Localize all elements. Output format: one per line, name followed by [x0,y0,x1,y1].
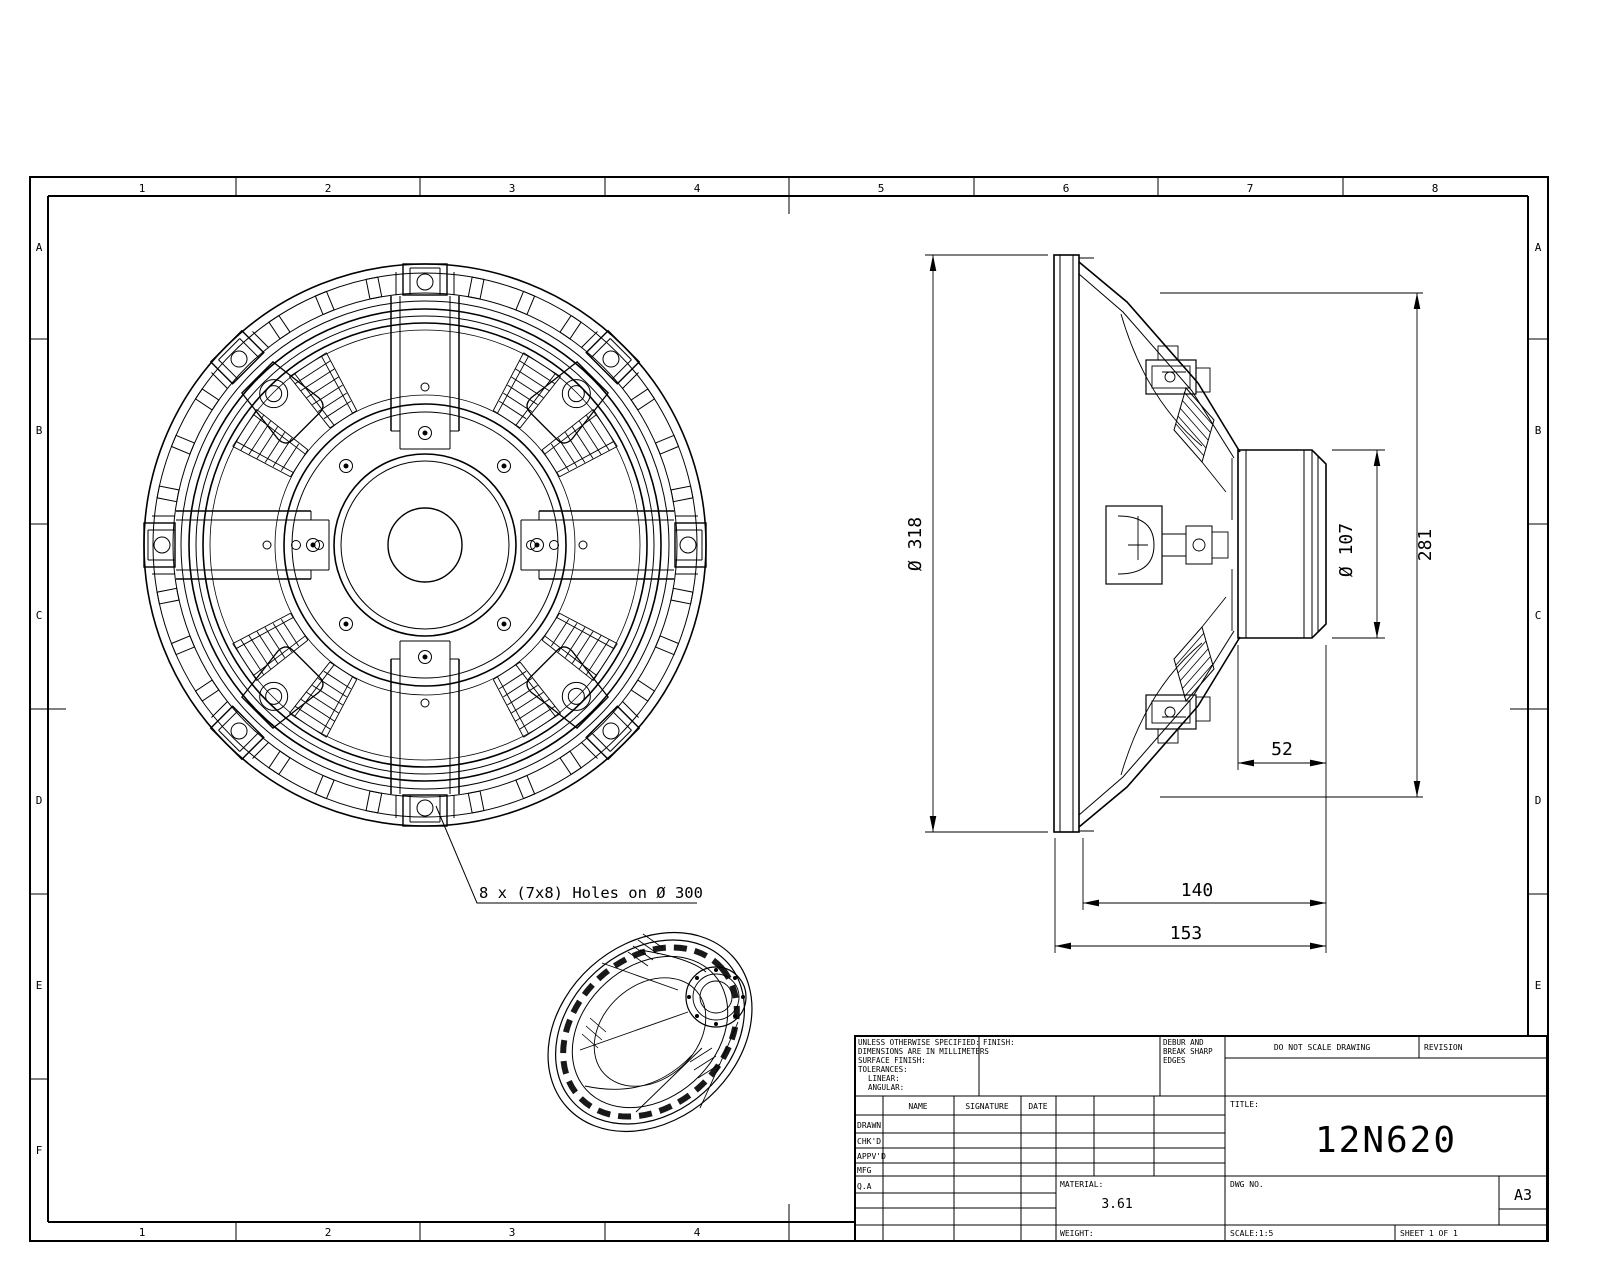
spider-detail [1106,506,1228,584]
approval-row-label: MFG [857,1166,872,1175]
debur-note-line: EDGES [1163,1056,1186,1065]
grid-col-label: 2 [325,1226,332,1239]
cooling-fins [233,353,618,738]
grid-col-label: 1 [139,182,146,195]
tolerance-note-line: UNLESS OTHERWISE SPECIFIED: [858,1038,980,1047]
grid-col-label: 6 [1063,182,1070,195]
sheet-count-label: SHEET 1 OF 1 [1400,1229,1458,1238]
paper-size-label: A3 [1514,1186,1532,1204]
dim-bolt-depth: 281 [1415,529,1436,562]
rim-vent-slots [157,277,693,813]
grid-row-label: C [36,609,43,622]
title-label: TITLE: [1230,1100,1259,1109]
grid-row-label: E [1535,979,1542,992]
tolerance-note-line: SURFACE FINISH: [858,1056,926,1065]
grid-row-label: A [36,241,43,254]
dim-magnet-diameter: Ø 107 [1336,523,1357,577]
grid-col-label: 1 [139,1226,146,1239]
isometric-view [508,892,792,1173]
hub-bolts [307,427,544,664]
grid-col-label: 7 [1247,182,1254,195]
gusset-plates [237,357,613,733]
dim-frame-depth: 140 [1181,880,1214,901]
drawing-sheet: 1 2 3 4 5 6 7 8 1 2 3 4 A B C D E F A B … [0,0,1600,1280]
material-label: MATERIAL: [1060,1180,1103,1189]
grid-col-label: 4 [694,182,701,195]
tolerance-note-line: LINEAR: [868,1074,900,1083]
do-not-scale-note: DO NOT SCALE DRAWING [1274,1043,1371,1052]
grid-row-label: E [36,979,43,992]
material-value: 3.61 [1101,1197,1132,1212]
date-column-header: DATE [1028,1102,1047,1111]
grid-col-label: 5 [878,182,885,195]
grid-col-label: 3 [509,182,516,195]
dim-overall-depth: 153 [1170,923,1203,944]
weight-label: WEIGHT: [1060,1229,1094,1238]
magnet-assembly [1238,450,1326,638]
grid-row-label: F [36,1144,43,1157]
annotation-holes: 8 x (7x8) Holes on Ø 300 [479,884,703,902]
debur-note-line: DEBUR AND [1163,1038,1204,1047]
scale-label: SCALE:1:5 [1230,1229,1274,1238]
approval-row-label: DRAWN [857,1121,881,1130]
drawing-title: 12N620 [1315,1120,1457,1161]
dim-front-diameter: Ø 318 [905,517,926,571]
tolerance-note-line: DIMENSIONS ARE IN MILLIMETERS [858,1047,989,1056]
grid-row-label: B [1535,424,1542,437]
grid-col-label: 4 [694,1226,701,1239]
grid-col-label: 8 [1432,182,1439,195]
approval-row-label: CHK'D [857,1137,881,1146]
name-column-header: NAME [908,1102,927,1111]
grid-row-label: B [36,424,43,437]
grid-row-label: D [36,794,43,807]
finish-label: FINISH: [983,1038,1015,1047]
side-view [925,255,1423,953]
front-view [144,264,706,903]
grid-col-label: 2 [325,182,332,195]
revision-label: REVISION [1424,1043,1463,1052]
approval-row-label: APPV'D [857,1152,886,1161]
approval-row-label: Q.A [857,1182,872,1191]
grid-col-label: 3 [509,1226,516,1239]
dim-magnet-depth: 52 [1271,739,1293,760]
mounting-ears [144,264,706,826]
tolerance-note-line: ANGULAR: [868,1083,904,1092]
grid-row-label: D [1535,794,1542,807]
debur-note-line: BREAK SHARP [1163,1047,1213,1056]
signature-column-header: SIGNATURE [965,1102,1009,1111]
tolerance-note-line: TOLERANCES: [858,1065,908,1074]
basket-spokes [176,296,674,794]
grid-row-label: A [1535,241,1542,254]
grid-row-label: C [1535,609,1542,622]
dwg-no-label: DWG NO. [1230,1180,1264,1189]
